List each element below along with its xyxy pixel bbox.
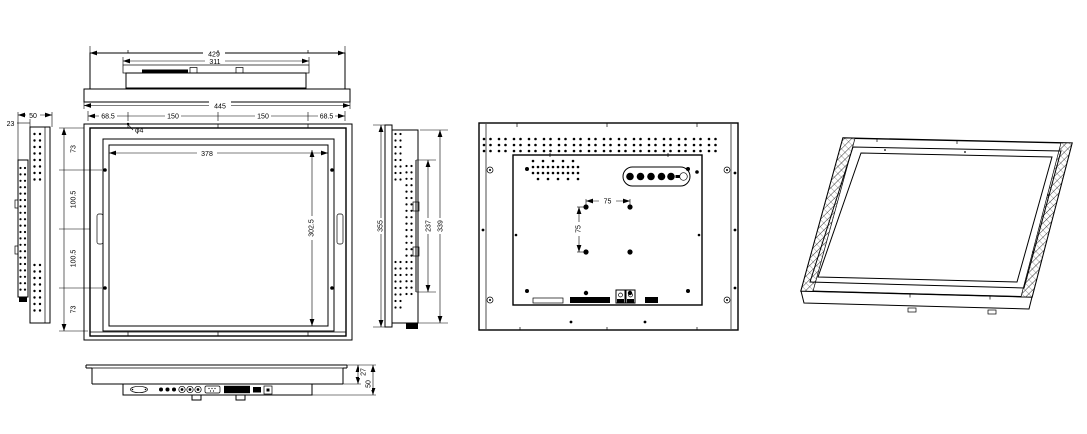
- rear-view: 75 75: [479, 123, 738, 330]
- panel-screw: [964, 151, 966, 153]
- dim-mount-bottom: 73: [71, 306, 78, 314]
- rca-connector[interactable]: [195, 386, 201, 392]
- lcd-module-body: [126, 73, 306, 88]
- dim-mount-top: 73: [71, 145, 78, 153]
- dim-mount-pitch-left: 150: [167, 114, 179, 121]
- vent-hatch-band: [801, 138, 855, 291]
- osd-button[interactable]: [637, 173, 645, 181]
- power-led: [676, 175, 680, 178]
- panel-screw: [515, 234, 518, 237]
- dim-mount-pitch-right: 150: [257, 114, 269, 121]
- screen-outline: [109, 145, 328, 326]
- vent-holes: [394, 133, 401, 181]
- audio-jack[interactable]: [159, 388, 163, 392]
- power-plug[interactable]: [253, 387, 261, 393]
- side-tab: [97, 214, 103, 244]
- top-view: 429 311 445: [84, 46, 350, 111]
- dim-mount-upper: 100.5: [71, 191, 78, 209]
- panel-screw: [525, 289, 529, 293]
- dim-bracket-height: 237: [426, 220, 433, 232]
- front-view: 68.5 150 150 68.5 φ4 378: [59, 111, 352, 340]
- rca-connector[interactable]: [187, 386, 193, 392]
- monitor-dimensional-drawing: 429 311 445 50 23: [0, 0, 1087, 434]
- vent-hatch-band: [1021, 143, 1072, 297]
- bottom-foot: [19, 297, 27, 302]
- dim-screen-width: 378: [201, 151, 213, 158]
- panel-screw: [525, 167, 529, 171]
- osd-button-cluster[interactable]: [623, 167, 690, 186]
- pcb-strip: [142, 70, 188, 74]
- dim-chassis-height: 339: [438, 220, 445, 232]
- side-bezel-plate: [385, 125, 392, 327]
- mount-tab: [236, 395, 245, 400]
- dim-left-depth-total: 50: [29, 113, 37, 120]
- dim-vesa-width: 75: [604, 199, 612, 206]
- vent-holes: [33, 264, 41, 312]
- connector-block: [570, 297, 610, 303]
- dim-height-total: 355: [378, 220, 385, 232]
- dim-bottom-depth-total: 50: [366, 380, 373, 388]
- osd-button[interactable]: [647, 173, 655, 181]
- power-button[interactable]: [680, 173, 688, 181]
- bottom-view: 27 50: [86, 365, 376, 400]
- panel-screw: [695, 170, 699, 174]
- io-connectors: [131, 386, 273, 394]
- dim-mount-edge-left: 68.5: [101, 114, 115, 121]
- bottom-foot: [988, 310, 996, 314]
- audio-jack[interactable]: [172, 388, 176, 392]
- side-tab: [337, 214, 343, 244]
- left-side-view: 50 23: [4, 111, 52, 323]
- module-tab: [190, 68, 197, 74]
- top-base-plate: [84, 89, 350, 102]
- rear-connector-strip: [533, 290, 658, 303]
- dim-left-depth-front: 23: [7, 121, 15, 128]
- panel-screw: [686, 289, 690, 293]
- panel-screw: [698, 234, 701, 237]
- module-tab: [236, 68, 243, 74]
- mount-hole: [330, 168, 334, 172]
- dsub-connector[interactable]: [205, 386, 220, 393]
- vent-holes: [394, 261, 401, 309]
- osd-button[interactable]: [658, 173, 666, 181]
- side-chassis-profile: [30, 127, 50, 323]
- rca-connector[interactable]: [179, 386, 185, 392]
- mount-tab: [192, 395, 201, 400]
- osd-button[interactable]: [667, 173, 675, 181]
- panel-screw: [1047, 194, 1049, 196]
- perspective-view: [801, 138, 1072, 314]
- right-side-view: 355 237 339: [373, 125, 448, 329]
- bezel-opening: [103, 139, 334, 331]
- bottom-foot: [908, 308, 916, 312]
- panel-screw: [1032, 251, 1034, 253]
- bottom-foot: [406, 323, 418, 329]
- dim-bottom-depth-rear: 27: [361, 368, 368, 376]
- perspective-screen: [818, 153, 1052, 282]
- vent-holes: [19, 167, 26, 291]
- panel-screw: [884, 149, 886, 151]
- perspective-bezel-edge: [810, 147, 1061, 288]
- vent-holes: [33, 133, 41, 181]
- dim-top-base-width: 445: [214, 104, 226, 111]
- connector-slot: [533, 298, 563, 303]
- connector-block: [645, 297, 658, 303]
- vesa-hole: [627, 249, 632, 254]
- vent-holes: [405, 165, 412, 295]
- mount-hole: [103, 168, 107, 172]
- mount-hole: [330, 286, 334, 290]
- audio-jack[interactable]: [166, 388, 170, 392]
- perspective-bottom-skirt: [801, 291, 1032, 309]
- dvi-connector[interactable]: [224, 386, 250, 393]
- mount-hole: [103, 286, 107, 290]
- dim-mount-edge-right: 68.5: [320, 114, 334, 121]
- dim-mount-lower: 100.5: [71, 250, 78, 268]
- osd-button[interactable]: [626, 173, 634, 181]
- dim-screen-height: 302.5: [309, 219, 316, 237]
- dim-vesa-height: 75: [576, 225, 583, 233]
- mount-hole: [584, 291, 588, 295]
- technical-drawing-canvas: 429 311 445 50 23: [0, 0, 1087, 434]
